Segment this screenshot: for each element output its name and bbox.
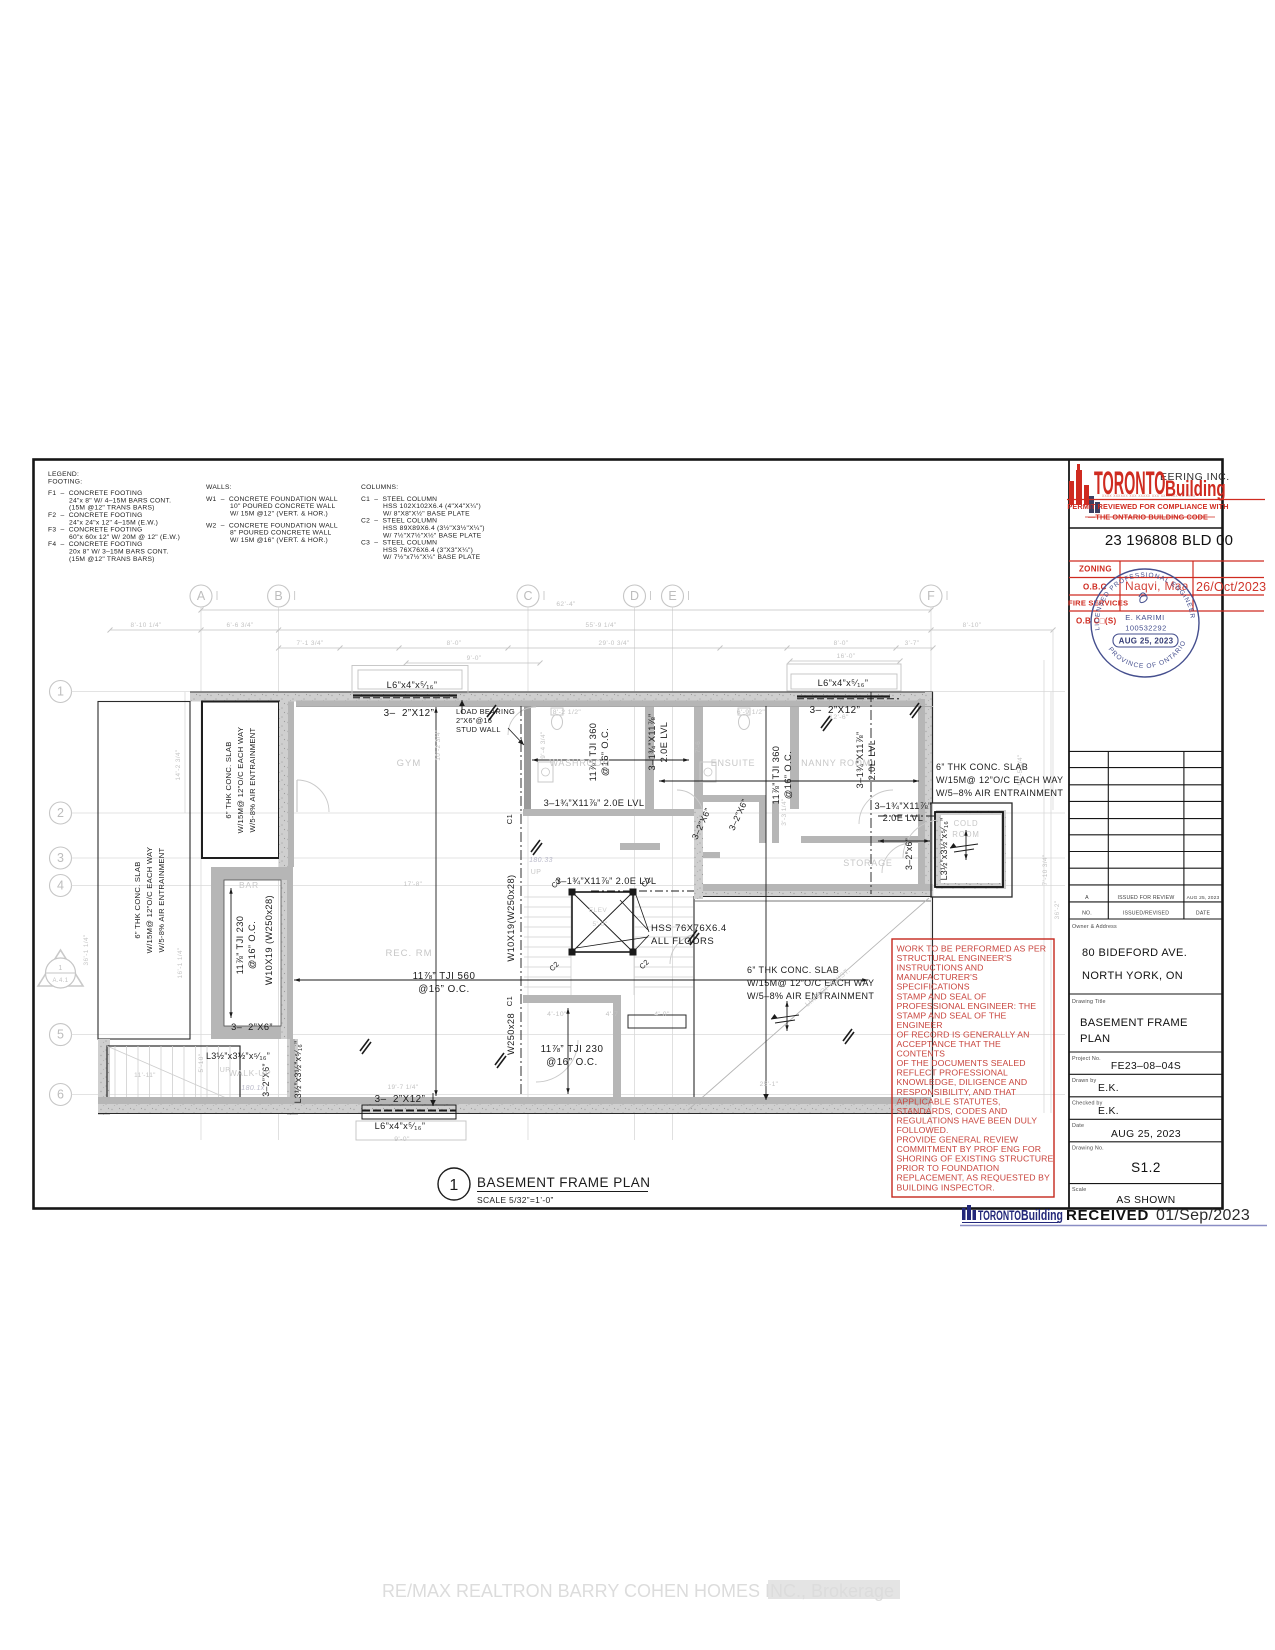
svg-text:L3½”x3½”x⁵⁄₁₆”: L3½”x3½”x⁵⁄₁₆” <box>206 1051 270 1061</box>
svg-text:180.33: 180.33 <box>529 857 553 864</box>
svg-text:3– 2”X12”: 3– 2”X12” <box>375 1094 426 1105</box>
svg-text:INSTRUCTIONS AND: INSTRUCTIONS AND <box>897 963 984 973</box>
svg-text:Drawn by: Drawn by <box>1072 1078 1096 1084</box>
svg-text:REPLACEMENT, AS REQUESTED BY: REPLACEMENT, AS REQUESTED BY <box>897 1173 1051 1183</box>
svg-text:NO.: NO. <box>1082 911 1092 917</box>
svg-text:W10X19(W250x28): W10X19(W250x28) <box>506 874 516 961</box>
svg-text:E: E <box>668 589 676 603</box>
svg-text:9'-0": 9'-0" <box>394 1136 410 1143</box>
svg-text:C1: C1 <box>505 814 514 824</box>
svg-text:BASEMENT FRAME PLAN: BASEMENT FRAME PLAN <box>477 1175 651 1190</box>
svg-text:REFLECT PROFESSIONAL: REFLECT PROFESSIONAL <box>897 1068 1008 1078</box>
svg-text:3–1¾”X11⅞” 2.0E LVL: 3–1¾”X11⅞” 2.0E LVL <box>556 876 657 886</box>
svg-text:4'-7: 4'-7 <box>606 1011 619 1018</box>
svg-text:MANUFACTURER'S: MANUFACTURER'S <box>897 972 978 982</box>
svg-text:W/ 15M @12" (VERT. & HOR.): W/ 15M @12" (VERT. & HOR.) <box>230 510 328 517</box>
svg-text:E.K.: E.K. <box>1098 1106 1119 1117</box>
svg-text:62’-4”: 62’-4” <box>556 601 575 608</box>
svg-text:(15M @12" TRANS BARS): (15M @12" TRANS BARS) <box>69 505 155 512</box>
svg-text:W/5–8% AIR ENTRAINMENT: W/5–8% AIR ENTRAINMENT <box>936 788 1063 798</box>
svg-text:2.0E LVL: 2.0E LVL <box>659 722 669 763</box>
svg-text:Building: Building <box>1165 477 1226 501</box>
svg-text:A: A <box>197 589 206 603</box>
svg-text:2”X6”@16: 2”X6”@16 <box>456 716 492 725</box>
svg-text:D: D <box>630 589 639 603</box>
svg-text:COLUMNS:: COLUMNS: <box>361 484 398 491</box>
svg-text:ACCEPTANCE THAT THE: ACCEPTANCE THAT THE <box>897 1039 1002 1049</box>
svg-text:HSS 76X76X6.4: HSS 76X76X6.4 <box>651 923 727 934</box>
svg-text:NANNY ROOM: NANNY ROOM <box>801 758 871 768</box>
svg-text:COLD: COLD <box>954 819 979 828</box>
svg-text:2.0E LVL: 2.0E LVL <box>883 813 924 823</box>
svg-text:WALLS:: WALLS: <box>206 484 232 491</box>
svg-text:L3½”x3½”x⁵⁄₁₆”: L3½”x3½”x⁵⁄₁₆” <box>939 818 949 881</box>
svg-text:STUD WALL: STUD WALL <box>456 725 501 734</box>
svg-text:(15M @12" TRANS BARS): (15M @12" TRANS BARS) <box>69 556 155 563</box>
svg-text:36’-1 1/4”: 36’-1 1/4” <box>83 935 90 966</box>
svg-text:6” THK CONC. SLAB: 6” THK CONC. SLAB <box>224 741 233 818</box>
svg-text:180.1x: 180.1x <box>241 1085 265 1092</box>
svg-text:W/ 7½"x7½"X¼" BASE PLATE: W/ 7½"x7½"X¼" BASE PLATE <box>383 553 481 561</box>
svg-text:RECEIVED: RECEIVED <box>1066 1207 1149 1224</box>
svg-text:16’-1 1/4”: 16’-1 1/4” <box>177 948 184 979</box>
svg-text:ISSUED/REVISED: ISSUED/REVISED <box>1123 911 1169 917</box>
svg-text:3’-7”: 3’-7” <box>905 640 920 647</box>
svg-text:LOAD BEARING: LOAD BEARING <box>456 707 515 716</box>
svg-text:Drawing No.: Drawing No. <box>1072 1146 1104 1152</box>
svg-text:F: F <box>927 589 935 603</box>
svg-text:PERMIT REVIEWED FOR COMPLIANCE: PERMIT REVIEWED FOR COMPLIANCE WITH <box>1067 502 1228 511</box>
svg-text:ENSUITE: ENSUITE <box>711 758 756 768</box>
svg-text:E.K.: E.K. <box>1098 1083 1119 1094</box>
svg-text:11'-11": 11'-11" <box>134 1072 156 1079</box>
svg-text:7'-6: 7'-6 <box>695 741 702 753</box>
svg-text:F4 – CONCRETE FOOTING: F4 – CONCRETE FOOTING <box>48 541 143 548</box>
svg-text:AUG 25, 2023: AUG 25, 2023 <box>1119 637 1174 646</box>
svg-text:60"x 60x 12" W/ 20M @ 12" (E.W: 60"x 60x 12" W/ 20M @ 12" (E.W.) <box>69 534 180 541</box>
svg-text:8’-0”: 8’-0” <box>447 640 462 647</box>
svg-text:23 196808 BLD 00: 23 196808 BLD 00 <box>1105 532 1233 549</box>
svg-text:3–2”x6”: 3–2”x6” <box>904 838 914 870</box>
svg-text:29’-0 3/4”: 29’-0 3/4” <box>599 640 630 647</box>
svg-text:WALK-UP: WALK-UP <box>229 1068 272 1078</box>
svg-text:BUILDING INSPECTOR.: BUILDING INSPECTOR. <box>897 1182 995 1192</box>
svg-text:6” THK CONC. SLAB: 6” THK CONC. SLAB <box>747 965 839 975</box>
svg-text:WORK TO BE PERFORMED AS PER: WORK TO BE PERFORMED AS PER <box>897 944 1047 954</box>
svg-text:W/15M@ 12”O/C EACH WAY: W/15M@ 12”O/C EACH WAY <box>145 847 154 954</box>
svg-text:COMMITMENT BY PROF ENG FOR: COMMITMENT BY PROF ENG FOR <box>897 1144 1042 1154</box>
svg-text:@16” O.C.: @16” O.C. <box>418 984 469 995</box>
svg-text:BASEMENT FRAME: BASEMENT FRAME <box>1080 1017 1188 1029</box>
svg-text:STAMP AND SEAL OF THE: STAMP AND SEAL OF THE <box>897 1010 1007 1020</box>
svg-text:F3 – CONCRETE FOOTING: F3 – CONCRETE FOOTING <box>48 527 143 534</box>
svg-text:AUG 25, 2023: AUG 25, 2023 <box>1111 1129 1181 1140</box>
svg-text:W/15M@ 12”O/C EACH WAY: W/15M@ 12”O/C EACH WAY <box>936 775 1063 785</box>
svg-text:7’-1 3/4”: 7’-1 3/4” <box>296 640 323 647</box>
svg-text:3– 2”X6”: 3– 2”X6” <box>231 1022 273 1032</box>
svg-text:REC. RM: REC. RM <box>385 948 432 959</box>
svg-text:RE/MAX REALTRON BARRY COHEN HO: RE/MAX REALTRON BARRY COHEN HOMES INC., … <box>382 1581 894 1601</box>
svg-text:8’-10 1/4”: 8’-10 1/4” <box>131 622 162 629</box>
svg-text:W10X19 (W250x28): W10X19 (W250x28) <box>264 895 274 985</box>
svg-text:6” THK CONC. SLAB: 6” THK CONC. SLAB <box>133 861 142 938</box>
svg-text:ENGINEER: ENGINEER <box>897 1020 943 1030</box>
svg-text:W/5-8% AIR ENTRAINMENT: W/5-8% AIR ENTRAINMENT <box>157 847 166 952</box>
svg-text:C2 – STEEL COLUMN: C2 – STEEL COLUMN <box>361 518 437 525</box>
svg-text:01/Sep/2023: 01/Sep/2023 <box>1156 1207 1250 1224</box>
svg-text:F2 – CONCRETE FOOTING: F2 – CONCRETE FOOTING <box>48 512 143 519</box>
svg-text:L6”x4”x⁵⁄₁₆”: L6”x4”x⁵⁄₁₆” <box>818 678 869 688</box>
svg-text:Drawing Title: Drawing Title <box>1072 999 1106 1005</box>
svg-text:6'-9 1/2": 6'-9 1/2" <box>737 709 766 716</box>
svg-text:3– 2”X12”: 3– 2”X12” <box>384 708 435 719</box>
svg-text:LEGEND:: LEGEND: <box>48 471 79 478</box>
svg-text:8’-10”: 8’-10” <box>963 622 982 629</box>
svg-text:Scale: Scale <box>1072 1187 1087 1193</box>
svg-text:PRIOR TO FOUNDATION: PRIOR TO FOUNDATION <box>897 1163 1000 1173</box>
svg-text:L3½”x3½”x⁵⁄₁₆”: L3½”x3½”x⁵⁄₁₆” <box>293 1041 303 1104</box>
svg-text:9'-4 3/4": 9'-4 3/4" <box>540 731 547 759</box>
svg-text:9’-0”: 9’-0” <box>467 655 482 662</box>
svg-text:6” THK CONC. SLAB: 6” THK CONC. SLAB <box>936 762 1028 772</box>
svg-text:AS SHOWN: AS SHOWN <box>1116 1195 1175 1206</box>
svg-text:6’-6 3/4”: 6’-6 3/4” <box>226 622 253 629</box>
svg-text:4'-10": 4'-10" <box>547 1011 567 1018</box>
svg-text:W/ 7½"X7½"X½" BASE PLATE: W/ 7½"X7½"X½" BASE PLATE <box>383 531 482 539</box>
svg-text:3–1¾”X11⅞” 2.0E LVL: 3–1¾”X11⅞” 2.0E LVL <box>544 798 645 808</box>
svg-text:5'-10": 5'-10" <box>198 1053 205 1072</box>
svg-text:100532292: 100532292 <box>1125 624 1167 633</box>
svg-text:GYM: GYM <box>397 758 422 769</box>
svg-text:11⅞” TJI 230: 11⅞” TJI 230 <box>235 916 245 975</box>
svg-text:HSS 89X89X6.4 (3½"X3½"X¼"): HSS 89X89X6.4 (3½"X3½"X¼") <box>383 524 485 532</box>
svg-text:C1: C1 <box>505 996 514 1006</box>
svg-text:2: 2 <box>57 806 64 820</box>
svg-text:UP: UP <box>531 869 542 876</box>
svg-text:8'-2 1/2": 8'-2 1/2" <box>553 709 582 716</box>
svg-text:BAR: BAR <box>239 880 259 890</box>
svg-text:L6”x4”x⁵⁄₁₆”: L6”x4”x⁵⁄₁₆” <box>375 1121 426 1131</box>
svg-text:REGULATIONS HAVE BEEN DULY: REGULATIONS HAVE BEEN DULY <box>897 1115 1038 1125</box>
svg-text:TORONTO: TORONTO <box>978 1208 1021 1224</box>
svg-text:@16” O.C.: @16” O.C. <box>600 728 610 776</box>
svg-text:@16” O.C.: @16” O.C. <box>546 1057 597 1068</box>
svg-text:8" POURED CONCRETE WALL: 8" POURED CONCRETE WALL <box>230 530 332 537</box>
svg-text:S1.2: S1.2 <box>1131 1160 1161 1175</box>
svg-text:7’-10 3/4”: 7’-10 3/4” <box>1042 855 1049 886</box>
svg-text:36’-2”: 36’-2” <box>1054 901 1061 920</box>
svg-text:20x 8" W/ 3–15M BARS CONT.: 20x 8" W/ 3–15M BARS CONT. <box>69 549 169 556</box>
svg-text:C1 – STEEL COLUMN: C1 – STEEL COLUMN <box>361 496 437 503</box>
svg-text:1: 1 <box>57 685 64 699</box>
svg-text:STAMP AND SEAL OF: STAMP AND SEAL OF <box>897 991 987 1001</box>
svg-text:3–1¾”X11⅞”: 3–1¾”X11⅞” <box>647 713 657 770</box>
svg-text:10" POURED CONCRETE WALL: 10" POURED CONCRETE WALL <box>230 503 336 510</box>
svg-text:3: 3 <box>57 851 64 865</box>
svg-text:11⅞” TJI 230: 11⅞” TJI 230 <box>541 1044 604 1055</box>
svg-text:AUG 25, 2023: AUG 25, 2023 <box>1187 895 1220 901</box>
svg-text:PROVIDE GENERAL REVIEW: PROVIDE GENERAL REVIEW <box>897 1135 1019 1145</box>
svg-text:HSS 102X102X6.4 (4"X4"X¼"): HSS 102X102X6.4 (4"X4"X¼") <box>383 503 481 510</box>
svg-text:24"x 8" W/ 4–15M BARS CONT.: 24"x 8" W/ 4–15M BARS CONT. <box>69 497 171 504</box>
svg-text:FE23–08–04S: FE23–08–04S <box>1111 1061 1181 1072</box>
svg-text:W250x28: W250x28 <box>506 1013 516 1055</box>
svg-text:ELEV: ELEV <box>589 907 607 914</box>
svg-text:UP: UP <box>220 1067 231 1074</box>
svg-text:24"x 24"x 12" 4–15M (E.W.): 24"x 24"x 12" 4–15M (E.W.) <box>69 519 158 526</box>
svg-text:A.4.1: A.4.1 <box>52 978 68 984</box>
svg-text:C: C <box>523 589 532 603</box>
svg-text:W/ 8"X8"X½" BASE PLATE: W/ 8"X8"X½" BASE PLATE <box>383 509 470 517</box>
svg-text:F1 – CONCRETE FOOTING: F1 – CONCRETE FOOTING <box>48 490 143 497</box>
svg-text:14’-2 3/4”: 14’-2 3/4” <box>175 750 182 781</box>
svg-text:KNOWLEDGE, DILIGENCE AND: KNOWLEDGE, DILIGENCE AND <box>897 1077 1028 1087</box>
svg-text:A: A <box>1085 895 1089 901</box>
svg-text:16’-0”: 16’-0” <box>837 653 856 660</box>
svg-text:11⅞” TJI 360: 11⅞” TJI 360 <box>771 746 781 805</box>
svg-text:ISSUED FOR REVIEW: ISSUED FOR REVIEW <box>1117 895 1174 901</box>
svg-text:SHORING OF EXISTING STRUCTURE: SHORING OF EXISTING STRUCTURE <box>897 1154 1054 1164</box>
svg-text:W/15M@ 12”O/C EACH WAY: W/15M@ 12”O/C EACH WAY <box>236 727 245 834</box>
svg-text:55’-9 1/4”: 55’-9 1/4” <box>586 622 617 629</box>
svg-text:NORTH YORK, ON: NORTH YORK, ON <box>1082 970 1183 982</box>
svg-text:FOLLOWED.: FOLLOWED. <box>897 1125 949 1135</box>
svg-text:O.B.C: O.B.C <box>1083 583 1107 592</box>
svg-text:1: 1 <box>449 1177 458 1194</box>
svg-text:11⅞” TJI 360: 11⅞” TJI 360 <box>588 723 598 782</box>
svg-text:26/Oct/2023: 26/Oct/2023 <box>1196 580 1266 594</box>
svg-text:WASHROOM: WASHROOM <box>549 758 610 768</box>
svg-text:C3 – STEEL COLUMN: C3 – STEEL COLUMN <box>361 540 437 547</box>
svg-text:PROFESSIONAL ENGINEER: THE: PROFESSIONAL ENGINEER: THE <box>897 1001 1037 1011</box>
svg-text:ALL FLOORS: ALL FLOORS <box>651 936 714 947</box>
svg-text:W/5-8% AIR ENTRAINMENT: W/5-8% AIR ENTRAINMENT <box>248 727 257 832</box>
svg-text:10'-2 3/4": 10'-2 3/4" <box>435 729 442 761</box>
svg-text:6: 6 <box>57 1088 64 1102</box>
svg-text:STRUCTURAL ENGINEER'S: STRUCTURAL ENGINEER'S <box>897 953 1013 963</box>
svg-text:3–1¾”X11⅞”: 3–1¾”X11⅞” <box>874 801 931 811</box>
svg-text:@16” O.C.: @16” O.C. <box>247 921 257 969</box>
svg-text:SPECIFICATIONS: SPECIFICATIONS <box>897 982 970 992</box>
svg-text:TORONTO: TORONTO <box>1094 467 1165 502</box>
svg-text:8’-0”: 8’-0” <box>834 640 849 647</box>
svg-text:RESPONSIBILITY, AND THAT: RESPONSIBILITY, AND THAT <box>897 1087 1017 1097</box>
svg-text:@16” O.C.: @16” O.C. <box>783 751 793 799</box>
svg-text:E. KARIMI: E. KARIMI <box>1125 613 1165 622</box>
svg-text:SCALE 5/32”=1’-0”: SCALE 5/32”=1’-0” <box>477 1195 554 1205</box>
svg-text:HSS 76X76X6.4 (3"X3"X¼"): HSS 76X76X6.4 (3"X3"X¼") <box>383 547 473 554</box>
svg-text:19'-7 1/4": 19'-7 1/4" <box>388 1084 419 1091</box>
svg-text:Owner & Address: Owner & Address <box>1072 924 1117 930</box>
svg-text:Date: Date <box>1072 1123 1084 1129</box>
svg-text:OF THE DOCUMENTS SEALED: OF THE DOCUMENTS SEALED <box>897 1058 1026 1068</box>
svg-text:DATE: DATE <box>1196 911 1211 917</box>
svg-text:CONTENTS: CONTENTS <box>897 1049 946 1059</box>
svg-text:Building: Building <box>1021 1206 1063 1223</box>
svg-text:1: 1 <box>58 965 62 972</box>
svg-text:APPLICABLE STATUTES,: APPLICABLE STATUTES, <box>897 1096 1001 1106</box>
svg-text:W2 – CONCRETE FOUNDATION WAL: W2 – CONCRETE FOUNDATION WALL <box>206 522 338 529</box>
svg-text:OF RECORD IS GENERALLY AN: OF RECORD IS GENERALLY AN <box>897 1029 1030 1039</box>
svg-text:80 BIDEFORD AVE.: 80 BIDEFORD AVE. <box>1082 947 1187 959</box>
svg-text:3'-3 1/4": 3'-3 1/4" <box>781 798 788 826</box>
svg-text:Project No.: Project No. <box>1072 1056 1101 1062</box>
svg-text:PLAN: PLAN <box>1080 1033 1110 1045</box>
svg-text:5: 5 <box>57 1028 64 1042</box>
svg-text:4: 4 <box>57 879 64 893</box>
svg-text:12'-6": 12'-6" <box>829 714 849 721</box>
svg-text:B: B <box>274 589 282 603</box>
svg-text:5'-0": 5'-0" <box>593 921 608 928</box>
svg-text:L6”x4”x⁵⁄₁₆”: L6”x4”x⁵⁄₁₆” <box>387 680 438 690</box>
svg-text:W1 – CONCRETE FOUNDATION WAL: W1 – CONCRETE FOUNDATION WALL <box>206 496 338 503</box>
svg-text:STANDARDS, CODES AND: STANDARDS, CODES AND <box>897 1106 1008 1116</box>
svg-text:ZONING: ZONING <box>1079 565 1112 574</box>
svg-text:25'-1": 25'-1" <box>760 1081 779 1088</box>
svg-text:W/ 15M @16" (VERT. & HOR.): W/ 15M @16" (VERT. & HOR.) <box>230 537 328 544</box>
svg-text:FOOTING:: FOOTING: <box>48 478 82 485</box>
svg-text:STORAGE: STORAGE <box>843 858 892 868</box>
svg-text:4'-0": 4'-0" <box>654 1011 670 1018</box>
svg-text:17'-8": 17'-8" <box>404 881 423 888</box>
